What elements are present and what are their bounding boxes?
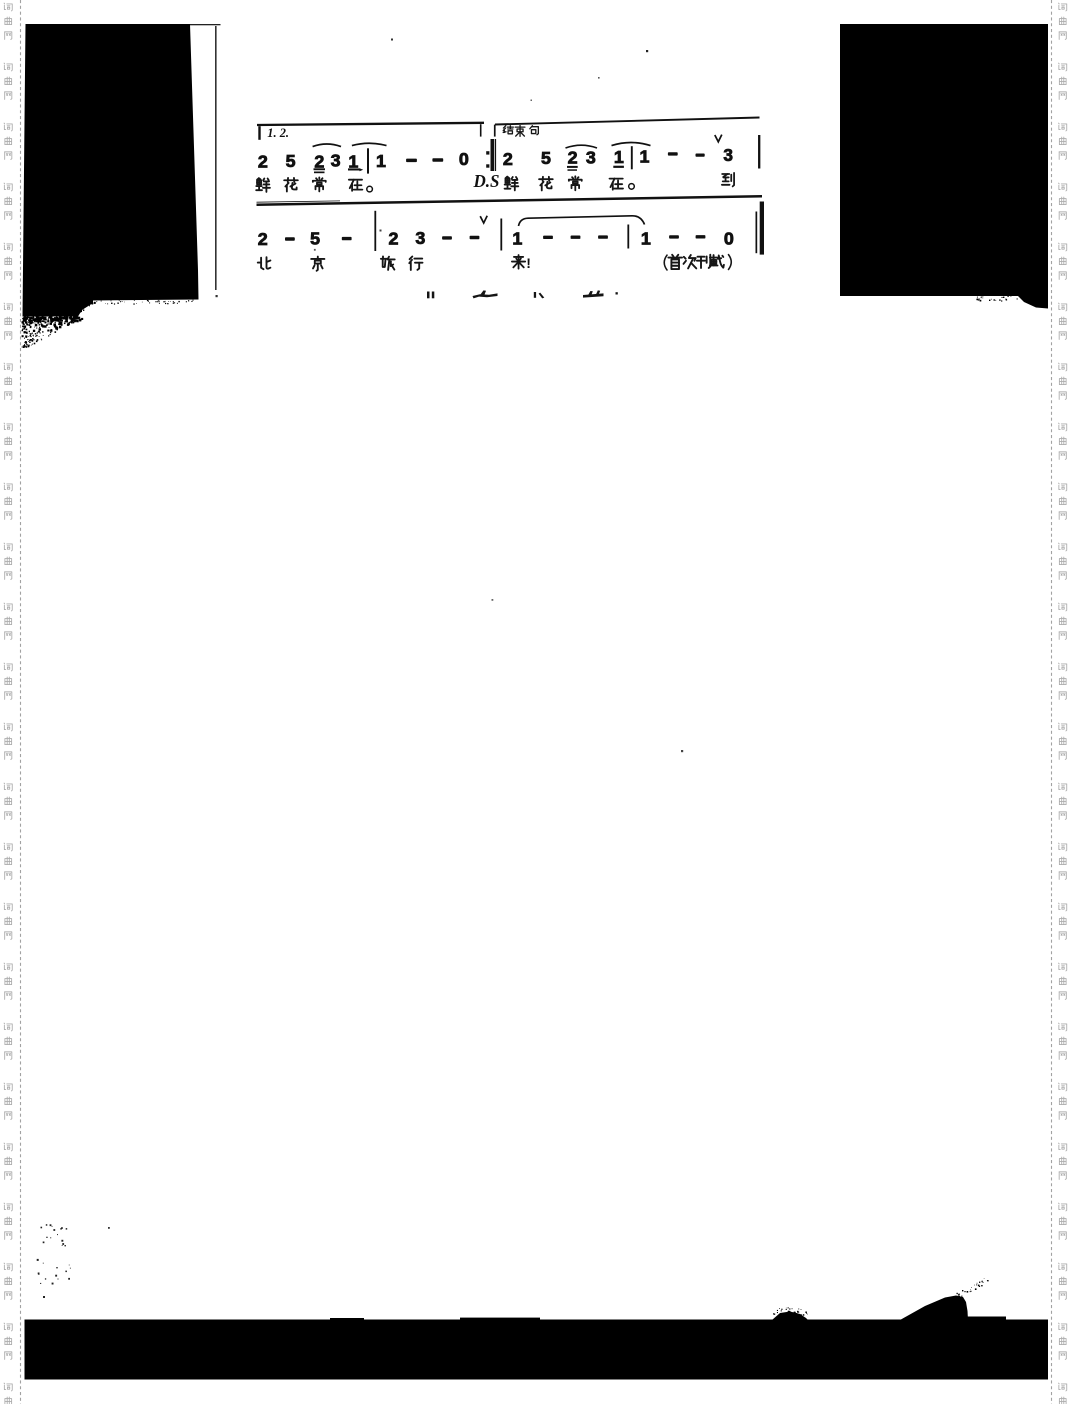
svg-text:1: 1 [640,147,650,167]
svg-text:1: 1 [376,151,386,171]
svg-text:2: 2 [568,148,578,168]
svg-text:1: 1 [614,147,624,167]
svg-text:3: 3 [331,150,341,170]
svg-text:2: 2 [258,229,268,249]
svg-text:1: 1 [641,228,651,248]
svg-text:0: 0 [459,149,469,169]
svg-text:3: 3 [415,228,425,248]
svg-text:!: ! [526,255,531,271]
svg-text:5: 5 [310,229,320,249]
svg-text:0: 0 [724,229,734,249]
svg-text:1. 2.: 1. 2. [267,126,289,140]
svg-text:2: 2 [389,228,399,248]
svg-text:5: 5 [541,148,551,168]
svg-text:1: 1 [512,228,522,248]
svg-text:2: 2 [258,152,268,172]
svg-text:5: 5 [286,151,296,171]
svg-text:D.S: D.S [473,171,500,191]
svg-text:3: 3 [586,147,596,167]
svg-text:2: 2 [503,149,513,169]
svg-text:3: 3 [723,145,733,165]
